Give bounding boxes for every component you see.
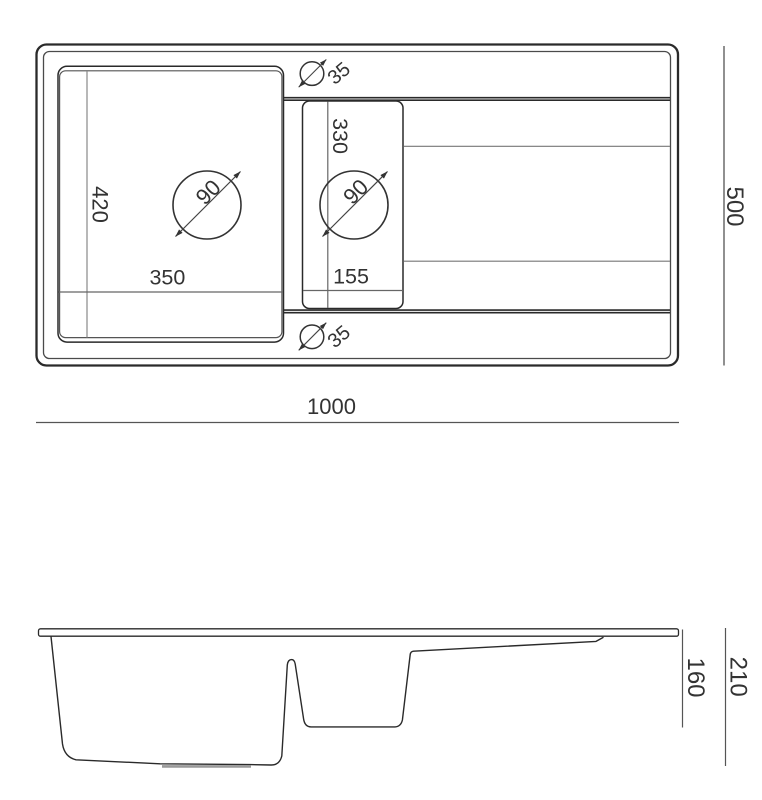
svg-text:160: 160 [682, 657, 709, 697]
svg-text:330: 330 [328, 118, 352, 154]
svg-text:350: 350 [149, 266, 185, 290]
svg-text:420: 420 [88, 186, 113, 223]
svg-text:210: 210 [725, 657, 752, 697]
svg-text:155: 155 [333, 265, 369, 289]
svg-text:1000: 1000 [307, 394, 356, 419]
svg-text:500: 500 [721, 186, 748, 226]
